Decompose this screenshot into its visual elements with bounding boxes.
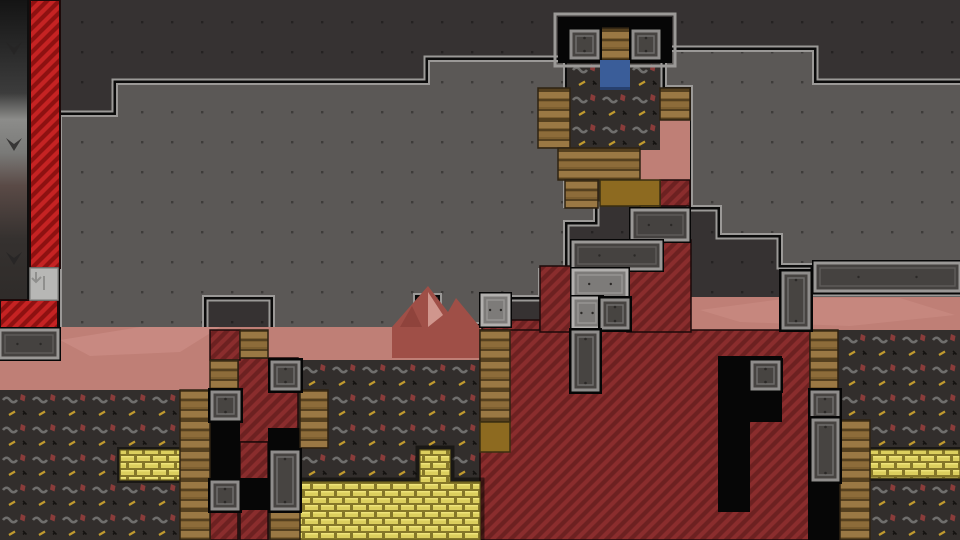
stone-door[interactable] (809, 416, 842, 484)
stone-door[interactable] (748, 358, 783, 393)
blue-marker-block (600, 60, 630, 90)
stone-door[interactable] (208, 388, 243, 423)
stone-door[interactable] (567, 27, 602, 62)
game-viewport[interactable] (0, 0, 960, 540)
stone-door[interactable] (569, 328, 602, 394)
stone-door[interactable] (208, 478, 242, 513)
stone-door[interactable] (779, 269, 813, 332)
stone-backwall-room-left (62, 62, 593, 327)
cracked-support-block (30, 268, 58, 300)
stone-door[interactable] (268, 358, 303, 393)
game-world-canvas[interactable] (0, 0, 960, 540)
map-edge-fade-strip (0, 0, 30, 332)
stone-door[interactable] (268, 448, 302, 513)
stone-door[interactable] (629, 27, 663, 62)
stone-door[interactable] (598, 296, 632, 332)
